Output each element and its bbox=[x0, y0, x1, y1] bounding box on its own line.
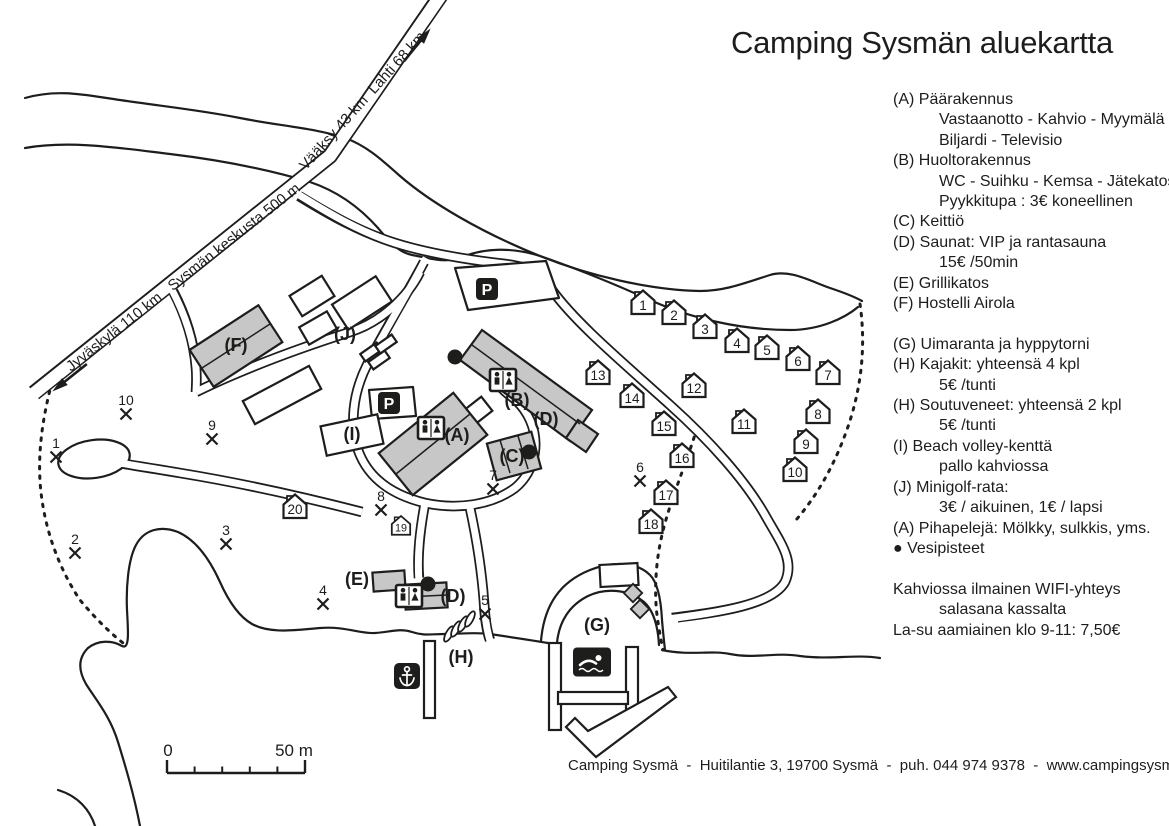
area-label: (B) bbox=[505, 390, 530, 410]
hut-marker: 2 bbox=[663, 301, 686, 325]
legend-line: (H) Soutuveneet: yhteensä 2 kpl bbox=[893, 396, 1169, 416]
svg-text:P: P bbox=[482, 282, 493, 299]
svg-text:16: 16 bbox=[674, 451, 689, 466]
beach-branch-surface bbox=[470, 508, 492, 647]
area-label: (I) bbox=[344, 424, 361, 444]
area-label: (F) bbox=[225, 335, 248, 355]
area-label: (E) bbox=[345, 569, 369, 589]
legend-line: (E) Grillikatos bbox=[893, 274, 1169, 294]
hut-marker: 1 bbox=[632, 291, 655, 315]
kayak-icons bbox=[442, 610, 477, 643]
dock-cross bbox=[558, 692, 628, 704]
parking-icon: P bbox=[476, 278, 498, 300]
svg-text:17: 17 bbox=[658, 488, 673, 503]
legend-line: Vastaanotto - Kahvio - Myymälä bbox=[893, 110, 1169, 130]
legend-line: Biljardi - Televisio bbox=[893, 131, 1169, 151]
svg-text:15: 15 bbox=[656, 419, 671, 434]
svg-text:4: 4 bbox=[733, 336, 741, 351]
legend-line: WC - Suihku - Kemsa - Jätekatos bbox=[893, 172, 1169, 192]
hut-marker: 4 bbox=[726, 329, 749, 353]
svg-text:18: 18 bbox=[643, 517, 658, 532]
legend-line: (C) Keittiö bbox=[893, 212, 1169, 232]
svg-text:7: 7 bbox=[489, 467, 497, 483]
legend-line: 5€ /tunti bbox=[893, 416, 1169, 436]
swimmer-icon bbox=[573, 648, 611, 677]
legend-line: (F) Hostelli Airola bbox=[893, 294, 1169, 314]
hut-marker: 12 bbox=[683, 374, 706, 398]
hut-marker: 7 bbox=[817, 361, 840, 385]
wc-icon bbox=[396, 585, 422, 607]
road-label: Vääksy 43 km Lahti 68 km bbox=[296, 28, 429, 173]
wc-icon bbox=[490, 369, 516, 391]
svg-text:10: 10 bbox=[787, 465, 802, 480]
pitch-marker: 9 bbox=[207, 417, 218, 445]
area-label: (J) bbox=[334, 324, 356, 344]
svg-text:6: 6 bbox=[794, 354, 802, 369]
hut-marker: 17 bbox=[655, 481, 678, 505]
svg-text:9: 9 bbox=[208, 417, 216, 433]
area-label: (C) bbox=[500, 446, 525, 466]
outline-building bbox=[243, 366, 321, 424]
legend-line: 15€ /50min bbox=[893, 253, 1169, 273]
camping-map-page: PP 1234567891011121314151617181920 12345… bbox=[0, 0, 1169, 826]
pitch-marker: 3 bbox=[221, 522, 232, 550]
svg-text:7: 7 bbox=[824, 368, 832, 383]
south-shoreline-east bbox=[662, 650, 880, 658]
hut-marker: 6 bbox=[787, 347, 810, 371]
svg-text:8: 8 bbox=[814, 407, 822, 422]
svg-text:3: 3 bbox=[701, 322, 709, 337]
legend-line: 5€ /tunti bbox=[893, 376, 1169, 396]
area-label: (A) bbox=[445, 425, 470, 445]
legend-line bbox=[893, 314, 1169, 334]
hut-marker: 5 bbox=[756, 336, 779, 360]
legend-line: 3€ / aikuinen, 1€ / lapsi bbox=[893, 498, 1169, 518]
pitch-marker: 2 bbox=[70, 531, 81, 559]
scale-zero-label: 0 bbox=[163, 741, 172, 760]
svg-text:20: 20 bbox=[287, 502, 302, 517]
svg-text:1: 1 bbox=[639, 298, 647, 313]
water-point-dot bbox=[421, 577, 436, 592]
parking-lot-north bbox=[455, 261, 559, 310]
pitch-marker: 4 bbox=[318, 582, 329, 610]
corner-shoreline bbox=[58, 790, 95, 826]
svg-text:12: 12 bbox=[686, 381, 701, 396]
hut-marker: 10 bbox=[784, 458, 807, 482]
svg-text:5: 5 bbox=[763, 343, 771, 358]
svg-text:4: 4 bbox=[319, 582, 327, 598]
svg-text:2: 2 bbox=[670, 308, 678, 323]
legend-line: salasana kassalta bbox=[893, 600, 1169, 620]
legend-line: Kahviossa ilmainen WIFI-yhteys bbox=[893, 580, 1169, 600]
pier-west bbox=[424, 641, 435, 718]
dock-left bbox=[549, 643, 561, 730]
outline-building bbox=[332, 276, 392, 329]
pitch-marker: 6 bbox=[635, 459, 646, 487]
svg-text:14: 14 bbox=[624, 391, 640, 406]
svg-text:10: 10 bbox=[118, 392, 134, 408]
hut-marker: 3 bbox=[694, 315, 717, 339]
legend-line: pallo kahviossa bbox=[893, 457, 1169, 477]
legend: (A) PäärakennusVastaanotto - Kahvio - My… bbox=[893, 90, 1169, 641]
svg-text:2: 2 bbox=[71, 531, 79, 547]
svg-text:3: 3 bbox=[222, 522, 230, 538]
area-label: (D) bbox=[441, 586, 466, 606]
svg-text:1: 1 bbox=[52, 435, 60, 451]
legend-line: (A) Pihapelejä: Mölkky, sulkkis, yms. bbox=[893, 519, 1169, 539]
legend-line: La-su aamiainen klo 9-11: 7,50€ bbox=[893, 621, 1169, 641]
svg-text:6: 6 bbox=[636, 459, 644, 475]
boundary-dashed-west bbox=[40, 382, 127, 646]
svg-text:11: 11 bbox=[737, 417, 751, 432]
svg-text:5: 5 bbox=[481, 592, 489, 608]
svg-text:13: 13 bbox=[590, 368, 605, 383]
river-shore-upper bbox=[25, 93, 862, 301]
legend-line: Pyykkitupa : 3€ koneellinen bbox=[893, 192, 1169, 212]
hut-marker: 18 bbox=[640, 510, 663, 534]
legend-line: (B) Huoltorakennus bbox=[893, 151, 1169, 171]
area-label: (G) bbox=[584, 615, 610, 635]
map-title: Camping Sysmän aluekartta bbox=[731, 25, 1151, 61]
water-point-dot bbox=[448, 350, 463, 365]
legend-line: (J) Minigolf-rata: bbox=[893, 478, 1169, 498]
area-label: (H) bbox=[449, 647, 474, 667]
scale-max-label: 50 m bbox=[275, 741, 313, 760]
wc-icon bbox=[418, 417, 444, 439]
hut-marker: 15 bbox=[653, 412, 676, 436]
hut-marker: 8 bbox=[807, 400, 830, 424]
anchor-icon bbox=[394, 663, 420, 689]
legend-line: ● Vesipisteet bbox=[893, 539, 1169, 559]
hut-marker: 13 bbox=[587, 361, 610, 385]
svg-text:19: 19 bbox=[395, 523, 407, 535]
svg-text:8: 8 bbox=[377, 488, 385, 504]
legend-line: (D) Saunat: VIP ja rantasauna bbox=[893, 233, 1169, 253]
legend-line: (A) Päärakennus bbox=[893, 90, 1169, 110]
parking-icon: P bbox=[378, 392, 400, 414]
hut-marker: 11 bbox=[733, 410, 756, 434]
legend-line bbox=[893, 559, 1169, 579]
svg-text:9: 9 bbox=[802, 437, 810, 452]
hut-marker: 19 bbox=[392, 516, 410, 535]
pitch-marker: 8 bbox=[376, 488, 387, 516]
pitch-marker: 10 bbox=[118, 392, 134, 420]
hut-marker: 9 bbox=[795, 430, 818, 454]
scale-bar: 0 50 m bbox=[163, 741, 313, 773]
culdesac-path-surface bbox=[106, 460, 362, 512]
legend-line: (H) Kajakit: yhteensä 4 kpl bbox=[893, 355, 1169, 375]
pitch-marker: 7 bbox=[488, 467, 499, 495]
hut-marker: 14 bbox=[621, 384, 644, 408]
svg-text:P: P bbox=[384, 396, 395, 413]
footer-contact-line: Camping Sysmä - Huitilantie 3, 19700 Sys… bbox=[568, 757, 1169, 774]
area-label: (D) bbox=[534, 409, 559, 429]
outline-building bbox=[290, 276, 335, 316]
legend-line: (I) Beach volley-kenttä bbox=[893, 437, 1169, 457]
legend-line: (G) Uimaranta ja hyppytorni bbox=[893, 335, 1169, 355]
